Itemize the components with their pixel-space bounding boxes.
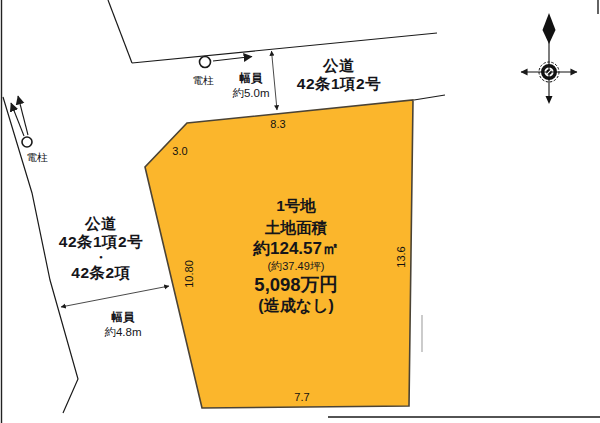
left-road-label: 公道 42条1項2号 ・ 42条2項 bbox=[59, 215, 143, 282]
plot-map: 公道 42条1項2号 公道 42条1項2号 ・ 42条2項 幅員 約5.0m 幅… bbox=[0, 0, 600, 423]
left-utility-pole-icon bbox=[22, 137, 32, 147]
left-width-caption: 幅員 bbox=[104, 309, 141, 325]
top-pole-label: 電柱 bbox=[193, 74, 214, 87]
top-pole-arrow bbox=[213, 57, 252, 62]
dimension-top-edge: 8.3 bbox=[270, 118, 285, 131]
left-pole-arrow-2 bbox=[18, 96, 28, 135]
parcel-area-sqm: 約124.57㎡ bbox=[253, 239, 339, 259]
top-utility-pole-icon bbox=[200, 57, 211, 68]
top-road-north-boundary bbox=[132, 33, 437, 63]
dimension-west-edge: 10.80 bbox=[183, 260, 196, 288]
top-width-caption: 幅員 bbox=[232, 70, 269, 86]
left-road-separator: ・ bbox=[59, 251, 143, 264]
parcel-price: 5,098万円 bbox=[253, 274, 339, 296]
left-width-value: 約4.8m bbox=[104, 325, 141, 340]
top-width-dimension-arrow bbox=[272, 51, 278, 110]
left-pole-label: 電柱 bbox=[27, 151, 48, 164]
parcel-info-block: 1号地 土地面積 約124.57㎡ (約37.49坪) 5,098万円 (造成な… bbox=[253, 195, 339, 316]
top-width-value: 約5.0m bbox=[232, 86, 269, 101]
top-width-label: 幅員 約5.0m bbox=[232, 70, 269, 101]
left-road-name: 公道 bbox=[59, 215, 143, 233]
top-left-boundary-line bbox=[108, 0, 132, 63]
dimension-east-edge: 13.6 bbox=[395, 246, 408, 267]
top-road-regulation: 42条1項2号 bbox=[297, 75, 381, 93]
left-road-regulation-2: 42条2項 bbox=[59, 264, 143, 282]
left-width-dimension-arrow bbox=[61, 286, 169, 307]
left-width-label: 幅員 約4.8m bbox=[104, 309, 141, 340]
top-road-label: 公道 42条1項2号 bbox=[297, 57, 381, 93]
left-road-regulation-1: 42条1項2号 bbox=[59, 233, 143, 251]
dimension-chamfer-edge: 3.0 bbox=[172, 145, 187, 158]
parcel-title: 1号地 bbox=[253, 195, 339, 217]
parcel-note: (造成なし) bbox=[253, 296, 339, 316]
parcel-area-tsubo: (約37.49坪) bbox=[253, 259, 339, 274]
top-road-south-boundary-extension bbox=[414, 95, 445, 100]
compass-rose-icon bbox=[521, 13, 577, 104]
top-road-name: 公道 bbox=[297, 57, 381, 75]
dimension-bottom-edge: 7.7 bbox=[294, 391, 309, 404]
parcel-area-label: 土地面積 bbox=[253, 217, 339, 239]
